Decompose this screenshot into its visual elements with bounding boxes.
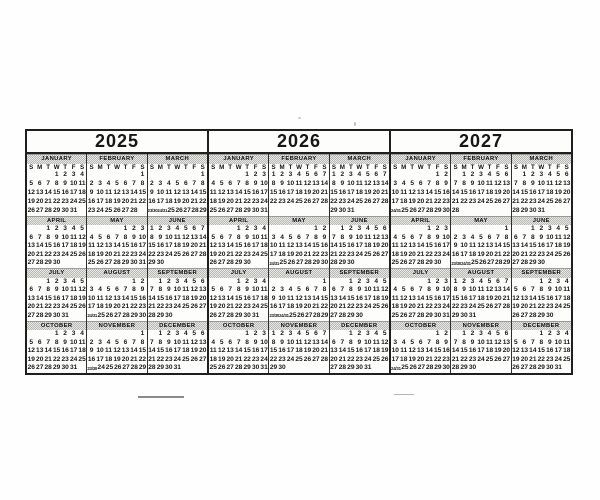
date-row: 12131415161718 xyxy=(27,347,86,356)
date-cell: 31 xyxy=(537,208,545,215)
date-row: 19202122232425 xyxy=(209,303,268,312)
date-row: 19202122232425 xyxy=(512,356,571,365)
date-cell: 28 xyxy=(226,313,234,320)
date-cell: 29 xyxy=(347,365,355,372)
date-cell: 23 xyxy=(156,252,164,259)
weekday-label: W xyxy=(416,164,424,172)
date-row: 22232425262728 xyxy=(269,356,328,365)
date-row: 567891011 xyxy=(512,339,571,348)
date-cell: 14 xyxy=(148,348,156,355)
date-cell: 29 xyxy=(347,313,355,320)
date-cell: 24 xyxy=(364,304,372,311)
date-cell: 30 xyxy=(251,208,259,215)
date-cell: 26 xyxy=(78,252,86,259)
date-cell: 22 xyxy=(520,199,528,206)
date-cell: 29 xyxy=(44,260,52,267)
date-cell: 13 xyxy=(520,296,528,303)
date-cell: 27 xyxy=(122,365,130,372)
date-cell: 20 xyxy=(330,357,338,364)
month-name-band: JANUARY xyxy=(391,154,450,164)
date-cell: 7 xyxy=(312,287,320,294)
date-grid: 1234567891011121314151617181920212223242… xyxy=(330,171,389,216)
date-cell: 5 xyxy=(408,340,416,347)
date-cell: 25 xyxy=(289,313,297,320)
date-cell: 23 xyxy=(347,252,355,259)
date-row: 891011121314 xyxy=(330,180,389,189)
date-cell: 17 xyxy=(546,243,554,250)
date-cell: 3 xyxy=(537,172,545,179)
date-row: 123456 xyxy=(451,171,510,180)
date-cell: 12 xyxy=(408,190,416,197)
date-cell: 7 xyxy=(320,331,328,338)
date-cell: 3 xyxy=(347,172,355,179)
date-cell: 18 xyxy=(209,357,217,364)
date-cell: 17 xyxy=(69,348,77,355)
month-september: SEPTEMBER1234567891011121314151617181920… xyxy=(511,268,571,320)
date-cell: 2 xyxy=(433,279,441,286)
date-cell: 29 xyxy=(425,313,433,320)
date-row: 2345678 xyxy=(87,339,146,348)
weekday-label: T xyxy=(303,164,311,172)
date-row: 1 xyxy=(269,278,328,287)
date-cell: 28 xyxy=(191,208,199,215)
date-cell: 11 xyxy=(399,348,407,355)
date-cell: 20 xyxy=(485,252,493,259)
date-cell: 14 xyxy=(425,190,433,197)
date-row: 6789101112 xyxy=(330,286,389,295)
weekday-label: T xyxy=(468,164,476,172)
date-cell: 19 xyxy=(96,252,104,259)
date-cell: 26 xyxy=(175,208,183,215)
date-cell: 4 xyxy=(87,235,95,242)
date-row: 6789101112 xyxy=(27,234,86,243)
date-row: 6789101112 xyxy=(330,339,389,348)
date-cell: 27 xyxy=(381,252,389,259)
date-cell: 16 xyxy=(165,296,173,303)
date-cell: 19 xyxy=(554,190,562,197)
date-cell: 15 xyxy=(425,296,433,303)
date-grid: 1234567891011121314151617181920212223242… xyxy=(269,330,328,373)
date-cell: 2 xyxy=(87,340,95,347)
month-name-band: APRIL xyxy=(209,216,268,226)
date-row: 262728293031 xyxy=(27,364,86,373)
date-cell: 30 xyxy=(61,208,69,215)
date-cell: 9 xyxy=(468,181,476,188)
date-cell: 25 xyxy=(546,199,554,206)
date-cell: 11 xyxy=(182,340,190,347)
date-cell: 29 xyxy=(434,365,442,372)
month-july: JULY123456789101112131415161718192021222… xyxy=(27,268,86,320)
date-cell: 1 xyxy=(156,279,164,286)
date-cell: 13 xyxy=(312,340,320,347)
date-cell: 7 xyxy=(148,340,156,347)
date-cell: 21 xyxy=(494,252,502,259)
date-row: 14151617181920 xyxy=(512,189,571,198)
date-cell: 20 xyxy=(217,304,225,311)
date-cell: 23 xyxy=(546,304,554,311)
date-row: 1234 xyxy=(512,330,571,339)
date-cell: 16 xyxy=(433,243,441,250)
date-cell: 27 xyxy=(520,365,528,372)
date-cell: 18 xyxy=(391,304,399,311)
month-name-band: SEPTEMBER xyxy=(330,268,389,278)
date-cell: 19 xyxy=(27,357,35,364)
date-cell: 19 xyxy=(182,243,190,250)
date-cell: 8 xyxy=(138,181,146,188)
date-cell: 9 xyxy=(61,340,69,347)
date-cell: 2 xyxy=(347,226,355,233)
date-cell: 29 xyxy=(243,365,251,372)
date-cell: 5 xyxy=(286,235,294,242)
month-name-band: MARCH xyxy=(148,154,207,164)
date-cell: 19 xyxy=(494,190,502,197)
date-cell: 6 xyxy=(502,172,510,179)
date-row: 23/3024/312526272829 xyxy=(451,259,510,268)
date-row: 282930 xyxy=(148,312,207,321)
month-november: NOVEMBER12345678910111213141516171819202… xyxy=(450,321,510,373)
date-cell: 3 xyxy=(156,181,164,188)
date-cell: 8 xyxy=(44,287,52,294)
date-cell: 9 xyxy=(529,181,537,188)
date-cell: 24 xyxy=(477,357,485,364)
date-cell: 27 xyxy=(330,313,338,320)
date-cell: 26 xyxy=(78,304,86,311)
month-name-band: JULY xyxy=(209,268,268,278)
month-may: MAY1234567891011121314151617181920212223… xyxy=(268,216,328,268)
date-cell: 3 xyxy=(260,172,268,179)
date-cell: 13 xyxy=(190,235,198,242)
date-row: 13141516171819 xyxy=(512,242,571,251)
month-name-band: FEBRUARY xyxy=(451,154,510,164)
date-cell: 26 xyxy=(303,357,311,364)
quarter-row: JANUARYSMTWTFS12345678910111213141516171… xyxy=(391,154,571,216)
date-cell: 8 xyxy=(451,287,459,294)
date-cell: 10 xyxy=(537,181,545,188)
date-cell: 29 xyxy=(130,313,138,320)
date-row: 18192021222324 xyxy=(391,251,450,260)
date-cell: 15 xyxy=(148,243,156,250)
date-cell: 28 xyxy=(520,260,528,267)
date-cell: 1 xyxy=(52,172,60,179)
date-cell: 28 xyxy=(304,260,312,267)
date-row: 2345678 xyxy=(269,286,328,295)
date-row: 123 xyxy=(209,330,268,339)
date-row: 1 xyxy=(451,225,510,234)
date-cell: 21 xyxy=(113,252,121,259)
date-cell: 10 xyxy=(554,340,562,347)
date-cell: 10 xyxy=(251,287,259,294)
month-august: AUGUST1234567891011121314151617181920212… xyxy=(268,268,328,320)
date-cell: 12 xyxy=(78,235,86,242)
date-cell: 2 xyxy=(320,226,328,233)
date-cell: 5 xyxy=(113,340,121,347)
date-row: 21222324252627 xyxy=(451,356,510,365)
date-grid: 1234567891011121314151617181920212223242… xyxy=(209,225,268,268)
date-cell: 24 xyxy=(347,199,355,206)
date-cell: 11 xyxy=(485,181,493,188)
weekday-label: T xyxy=(61,164,69,172)
date-cell: 28 xyxy=(416,313,424,320)
date-cell: 6 xyxy=(330,340,338,347)
date-grid: 1234567891011121314151617181920212223242… xyxy=(209,278,268,321)
month-name-band: MAY xyxy=(451,216,510,226)
date-cell: 13 xyxy=(121,190,129,197)
date-cell: 20 xyxy=(372,190,380,197)
date-cell: 2 xyxy=(451,235,459,242)
date-cell: 26 xyxy=(485,304,493,311)
date-row: 16171819202122 xyxy=(451,251,510,260)
combined-date-cell: 23/30 xyxy=(269,314,279,318)
date-cell: 25 xyxy=(554,252,562,259)
date-cell: 18 xyxy=(286,304,294,311)
date-cell: 25 xyxy=(105,365,113,372)
date-cell: 19 xyxy=(209,304,217,311)
weekday-label: S xyxy=(269,164,277,172)
date-cell: 21 xyxy=(320,348,328,355)
date-row: 24/31252627282930 xyxy=(391,364,450,373)
date-cell: 16 xyxy=(243,243,251,250)
date-cell: 12 xyxy=(408,348,416,355)
date-cell: 9 xyxy=(546,340,554,347)
date-row: 123456 xyxy=(148,330,207,339)
month-october: OCTOBER123456789101112131415161718192021… xyxy=(209,321,268,373)
date-row: 12345 xyxy=(512,225,571,234)
date-cell: 16 xyxy=(61,190,69,197)
date-cell: 23 xyxy=(165,304,173,311)
date-cell: 26 xyxy=(287,260,295,267)
date-cell: 25 xyxy=(485,357,493,364)
date-cell: 7 xyxy=(529,340,537,347)
date-row: 2627282930 xyxy=(209,259,268,268)
date-cell: 6 xyxy=(190,226,198,233)
date-cell: 1 xyxy=(433,331,441,338)
date-row: 14151617181920 xyxy=(451,347,510,356)
combined-date-cell: 23/30 xyxy=(148,209,158,213)
date-cell: 16 xyxy=(355,348,363,355)
date-cell: 4 xyxy=(468,235,476,242)
date-row: 13141516171819 xyxy=(330,347,389,356)
date-cell: 16 xyxy=(243,296,251,303)
weekday-label: F xyxy=(494,164,502,172)
date-cell: 29 xyxy=(52,365,60,372)
date-cell: 29 xyxy=(148,260,156,267)
date-cell: 14 xyxy=(44,190,52,197)
date-cell: 22 xyxy=(537,304,545,311)
date-row: 28293031 xyxy=(512,207,571,216)
date-cell: 26 xyxy=(209,313,217,320)
date-cell: 24 xyxy=(69,357,77,364)
weekday-label: F xyxy=(130,164,138,172)
date-cell: 9 xyxy=(269,296,277,303)
date-cell: 15 xyxy=(52,348,60,355)
date-cell: 4 xyxy=(182,331,190,338)
date-cell: 5 xyxy=(78,279,86,286)
date-cell: 2 xyxy=(468,172,476,179)
date-cell: 21 xyxy=(234,199,242,206)
weekday-label: S xyxy=(138,164,146,172)
date-row: 2728293031 xyxy=(27,312,86,321)
weekday-label: T xyxy=(243,164,251,172)
date-cell: 18 xyxy=(78,348,86,355)
month-name-band: OCTOBER xyxy=(209,321,268,331)
date-cell: 26 xyxy=(512,313,520,320)
date-cell: 11 xyxy=(546,181,554,188)
date-cell: 21 xyxy=(451,357,459,364)
date-cell: 6 xyxy=(502,331,510,338)
date-cell: 24 xyxy=(61,252,69,259)
date-cell: 22 xyxy=(320,304,328,311)
date-cell: 17 xyxy=(87,304,95,311)
date-cell: 19 xyxy=(408,357,416,364)
date-cell: 11 xyxy=(104,190,112,197)
date-grid: 1234567891011121314151617181920212223242… xyxy=(209,330,268,373)
date-cell: 11 xyxy=(173,235,181,242)
date-row: 19202122232425 xyxy=(27,356,86,365)
date-cell: 27 xyxy=(417,365,425,372)
date-row: 293031 xyxy=(330,207,389,216)
date-cell: 29 xyxy=(312,260,320,267)
date-cell: 19 xyxy=(485,296,493,303)
date-cell: 27 xyxy=(183,208,191,215)
date-cell: 4 xyxy=(554,226,562,233)
date-cell: 13 xyxy=(226,190,234,197)
date-row: 23/3024/312526272829 xyxy=(269,312,328,321)
date-grid: 1234567891011121314151617181920212223242… xyxy=(512,278,571,321)
month-february: FEBRUARYSMTWTFS1234567891011121314151617… xyxy=(450,154,510,216)
date-cell: 18 xyxy=(209,199,217,206)
date-cell: 2 xyxy=(546,331,554,338)
date-cell: 8 xyxy=(433,181,441,188)
date-cell: 8 xyxy=(234,235,242,242)
date-grid: 123456789101112131415161718192021222324/… xyxy=(87,278,146,321)
date-cell: 8 xyxy=(52,181,60,188)
date-cell: 17 xyxy=(554,296,562,303)
date-cell: 28 xyxy=(122,313,130,320)
date-cell: 18 xyxy=(563,296,571,303)
date-row: 567891011 xyxy=(209,234,268,243)
date-cell: 20 xyxy=(226,357,234,364)
date-cell: 26 xyxy=(381,304,389,311)
date-cell: 23 xyxy=(243,252,251,259)
date-cell: 4 xyxy=(69,279,77,286)
date-cell: 20 xyxy=(563,190,571,197)
date-cell: 12 xyxy=(209,296,217,303)
date-cell: 10 xyxy=(442,235,450,242)
date-cell: 6 xyxy=(563,172,571,179)
date-grid: 1234567891011121314151617181920212223242… xyxy=(148,330,207,373)
date-cell: 6 xyxy=(217,235,225,242)
date-cell: 23 xyxy=(130,252,138,259)
date-grid: 1234567891011121314151617181920212223/30… xyxy=(148,171,207,216)
date-cell: 20 xyxy=(190,243,198,250)
year-months: JANUARYSMTWTFS12345678910111213141516171… xyxy=(27,154,207,373)
date-row: 78910111213 xyxy=(451,339,510,348)
date-cell: 2 xyxy=(546,279,554,286)
date-cell: 23 xyxy=(442,199,450,206)
date-cell: 26 xyxy=(479,260,487,267)
date-cell: 22 xyxy=(199,199,207,206)
date-cell: 19 xyxy=(113,199,121,206)
date-cell: 10 xyxy=(477,340,485,347)
date-cell: 27 xyxy=(35,365,43,372)
weekday-label: W xyxy=(113,164,121,172)
date-cell: 18 xyxy=(485,348,493,355)
date-row: 12131415161718 xyxy=(27,189,86,198)
date-cell: 12 xyxy=(27,190,35,197)
date-cell: 2 xyxy=(529,172,537,179)
date-cell: 10 xyxy=(61,287,69,294)
date-row: 20212223242526 xyxy=(512,251,571,260)
date-cell: 12 xyxy=(512,296,520,303)
date-grid: 1234567891011121314151617181920212223/30… xyxy=(87,330,146,373)
combined-date-cell: 24/31 xyxy=(157,209,167,213)
date-cell: 6 xyxy=(512,235,520,242)
date-cell: 6 xyxy=(199,279,207,286)
month-name-band: JUNE xyxy=(148,216,207,226)
date-cell: 9 xyxy=(165,340,173,347)
date-cell: 10 xyxy=(96,348,104,355)
date-row: 12 xyxy=(269,225,328,234)
date-row: 123456 xyxy=(148,278,207,287)
weekday-label: W xyxy=(355,164,363,172)
date-cell: 14 xyxy=(529,296,537,303)
date-cell: 22 xyxy=(44,304,52,311)
date-cell: 23 xyxy=(433,252,441,259)
date-row: 1234567 xyxy=(330,171,389,180)
date-grid: 123456789101112131415161718192021222324/… xyxy=(391,330,450,373)
weekday-label: S xyxy=(78,164,86,172)
date-cell: 29 xyxy=(199,208,207,215)
date-cell: 5 xyxy=(27,181,35,188)
date-cell: 2 xyxy=(61,172,69,179)
date-cell: 27 xyxy=(217,260,225,267)
date-cell: 6 xyxy=(199,331,207,338)
date-cell: 31 xyxy=(260,365,268,372)
date-cell: 17 xyxy=(391,357,399,364)
date-grid: 1234567891011121314151617181920212223242… xyxy=(148,225,207,268)
date-cell: 22 xyxy=(433,357,441,364)
date-cell: 3 xyxy=(460,235,468,242)
date-cell: 20 xyxy=(502,190,510,197)
date-cell: 12 xyxy=(209,243,217,250)
date-cell: 21 xyxy=(338,304,346,311)
date-cell: 6 xyxy=(121,340,129,347)
date-cell: 20 xyxy=(295,252,303,259)
date-cell: 29 xyxy=(156,365,164,372)
date-row: 28293031 xyxy=(148,364,207,373)
date-cell: 3 xyxy=(69,172,77,179)
date-row: 20212223242526 xyxy=(330,356,389,365)
date-cell: 9 xyxy=(87,348,95,355)
date-cell: 12 xyxy=(217,348,225,355)
date-cell: 28 xyxy=(416,260,424,267)
date-cell: 7 xyxy=(512,181,520,188)
date-row: 45678910 xyxy=(391,234,450,243)
date-cell: 16 xyxy=(546,296,554,303)
date-cell: 16 xyxy=(278,190,286,197)
date-cell: 20 xyxy=(408,252,416,259)
date-cell: 7 xyxy=(381,172,389,179)
date-cell: 11 xyxy=(391,296,399,303)
date-cell: 24 xyxy=(286,199,294,206)
date-cell: 12 xyxy=(494,181,502,188)
date-cell: 30 xyxy=(546,313,554,320)
date-cell: 5 xyxy=(190,279,198,286)
date-row: 2345678 xyxy=(148,180,207,189)
date-grid: 1234567891011121314151617181920212223242… xyxy=(27,330,86,373)
date-cell: 8 xyxy=(130,287,138,294)
date-cell: 18 xyxy=(165,199,173,206)
